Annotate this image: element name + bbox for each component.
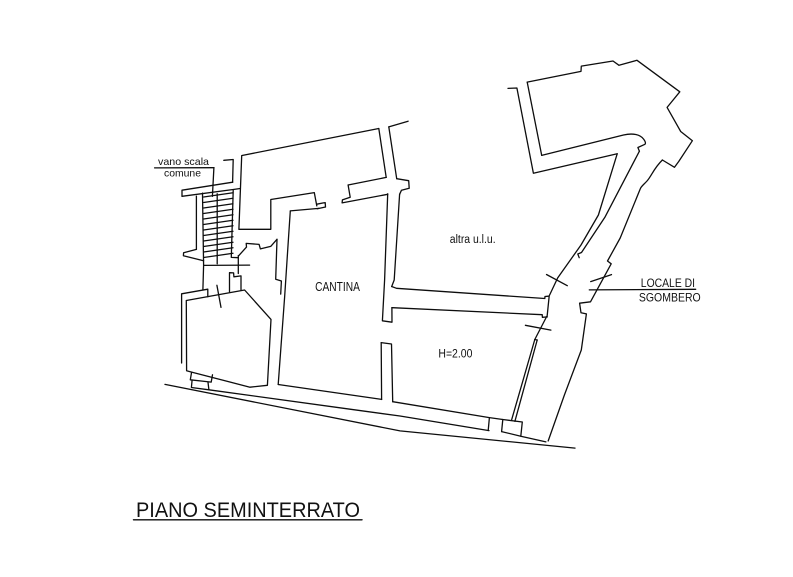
svg-text:SGOMBERO: SGOMBERO bbox=[639, 291, 701, 305]
svg-text:altra u.l.u.: altra u.l.u. bbox=[450, 234, 496, 246]
svg-text:PIANO SEMINTERRATO: PIANO SEMINTERRATO bbox=[136, 499, 360, 522]
svg-text:LOCALE DI: LOCALE DI bbox=[641, 276, 695, 290]
svg-text:CANTINA: CANTINA bbox=[315, 280, 360, 294]
svg-text:vano scala: vano scala bbox=[158, 157, 209, 168]
svg-text:comune: comune bbox=[164, 168, 201, 179]
svg-text:H=2.00: H=2.00 bbox=[438, 349, 472, 361]
